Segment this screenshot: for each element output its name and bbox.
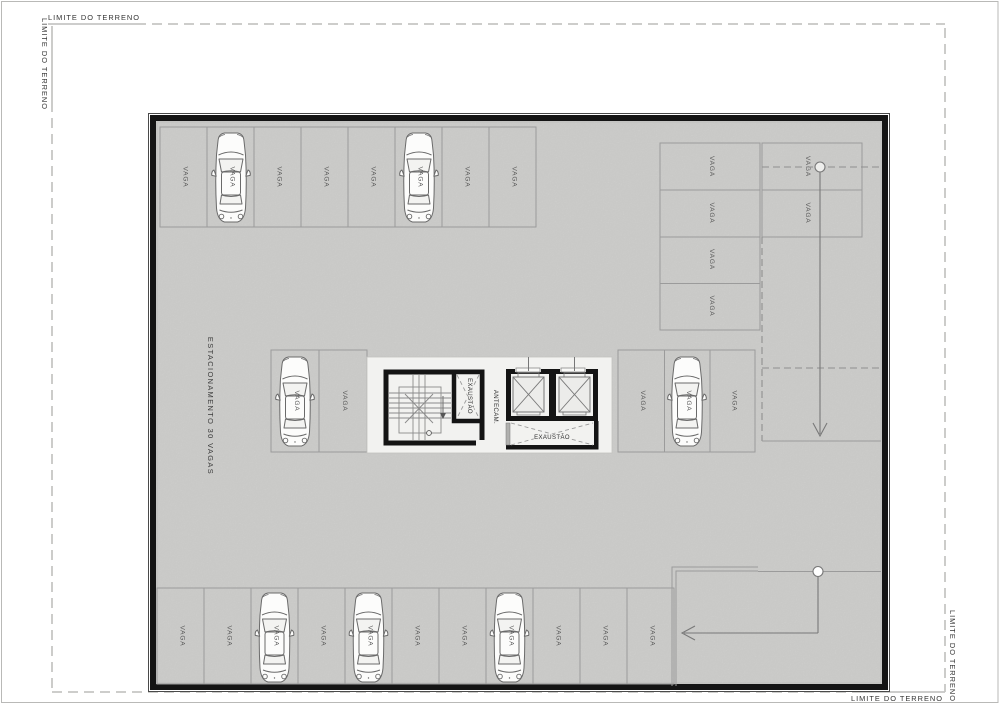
boundary-label-right: LIMITE DO TERRENO [948,610,957,702]
space-label: VAGA [367,625,374,646]
space-label: VAGA [414,625,421,646]
space-label: VAGA [731,390,738,411]
core-door-gap [476,440,486,448]
floor-plan-drawing: LIMITE DO TERRENO LIMITE DO TERRENO LIMI… [0,0,1000,707]
space-label: VAGA [555,625,562,646]
space-label: VAGA [293,390,300,411]
space-label: VAGA [464,166,471,187]
building-core: EXAUSTÃO ANTECAM. [367,357,612,453]
space-label: VAGA [508,625,515,646]
boundary-label-top: LIMITE DO TERRENO [48,13,140,22]
space-label: VAGA [179,625,186,646]
space-label: VAGA [461,625,468,646]
space-label: VAGA [511,166,518,187]
boundary-label-left: LIMITE DO TERRENO [40,18,49,110]
space-label: VAGA [229,166,236,187]
elevator-car-2 [559,373,590,415]
space-label: VAGA [708,249,715,270]
space-label: VAGA [273,625,280,646]
space-label: VAGA [417,166,424,187]
boundary-label-bottom: LIMITE DO TERRENO [851,694,943,703]
antechamber-label: ANTECAM. [492,390,498,424]
floor-plan-sheet: LIMITE DO TERRENO LIMITE DO TERRENO LIMI… [0,0,1000,707]
exhaust-label: EXAUSTÃO [534,434,570,441]
exhaust-shaft: EXAUSTÃO [454,372,482,421]
space-label: VAGA [804,202,811,223]
space-label: VAGA [639,390,646,411]
space-label: VAGA [649,625,656,646]
space-label: VAGA [708,295,715,316]
space-label: VAGA [226,625,233,646]
parking-title: ESTACIONAMENTO 30 VAGAS [206,337,215,475]
space-label: VAGA [370,166,377,187]
space-label: VAGA [708,202,715,223]
space-label: VAGA [685,390,692,411]
space-label: VAGA [182,166,189,187]
space-label: VAGA [341,390,348,411]
space-label: VAGA [708,156,715,177]
space-label: VAGA [602,625,609,646]
space-label: VAGA [323,166,330,187]
space-label: VAGA [320,625,327,646]
exhaust-label: EXAUSTÃO [466,378,473,414]
space-label: VAGA [276,166,283,187]
elevator-car-1 [513,373,544,415]
